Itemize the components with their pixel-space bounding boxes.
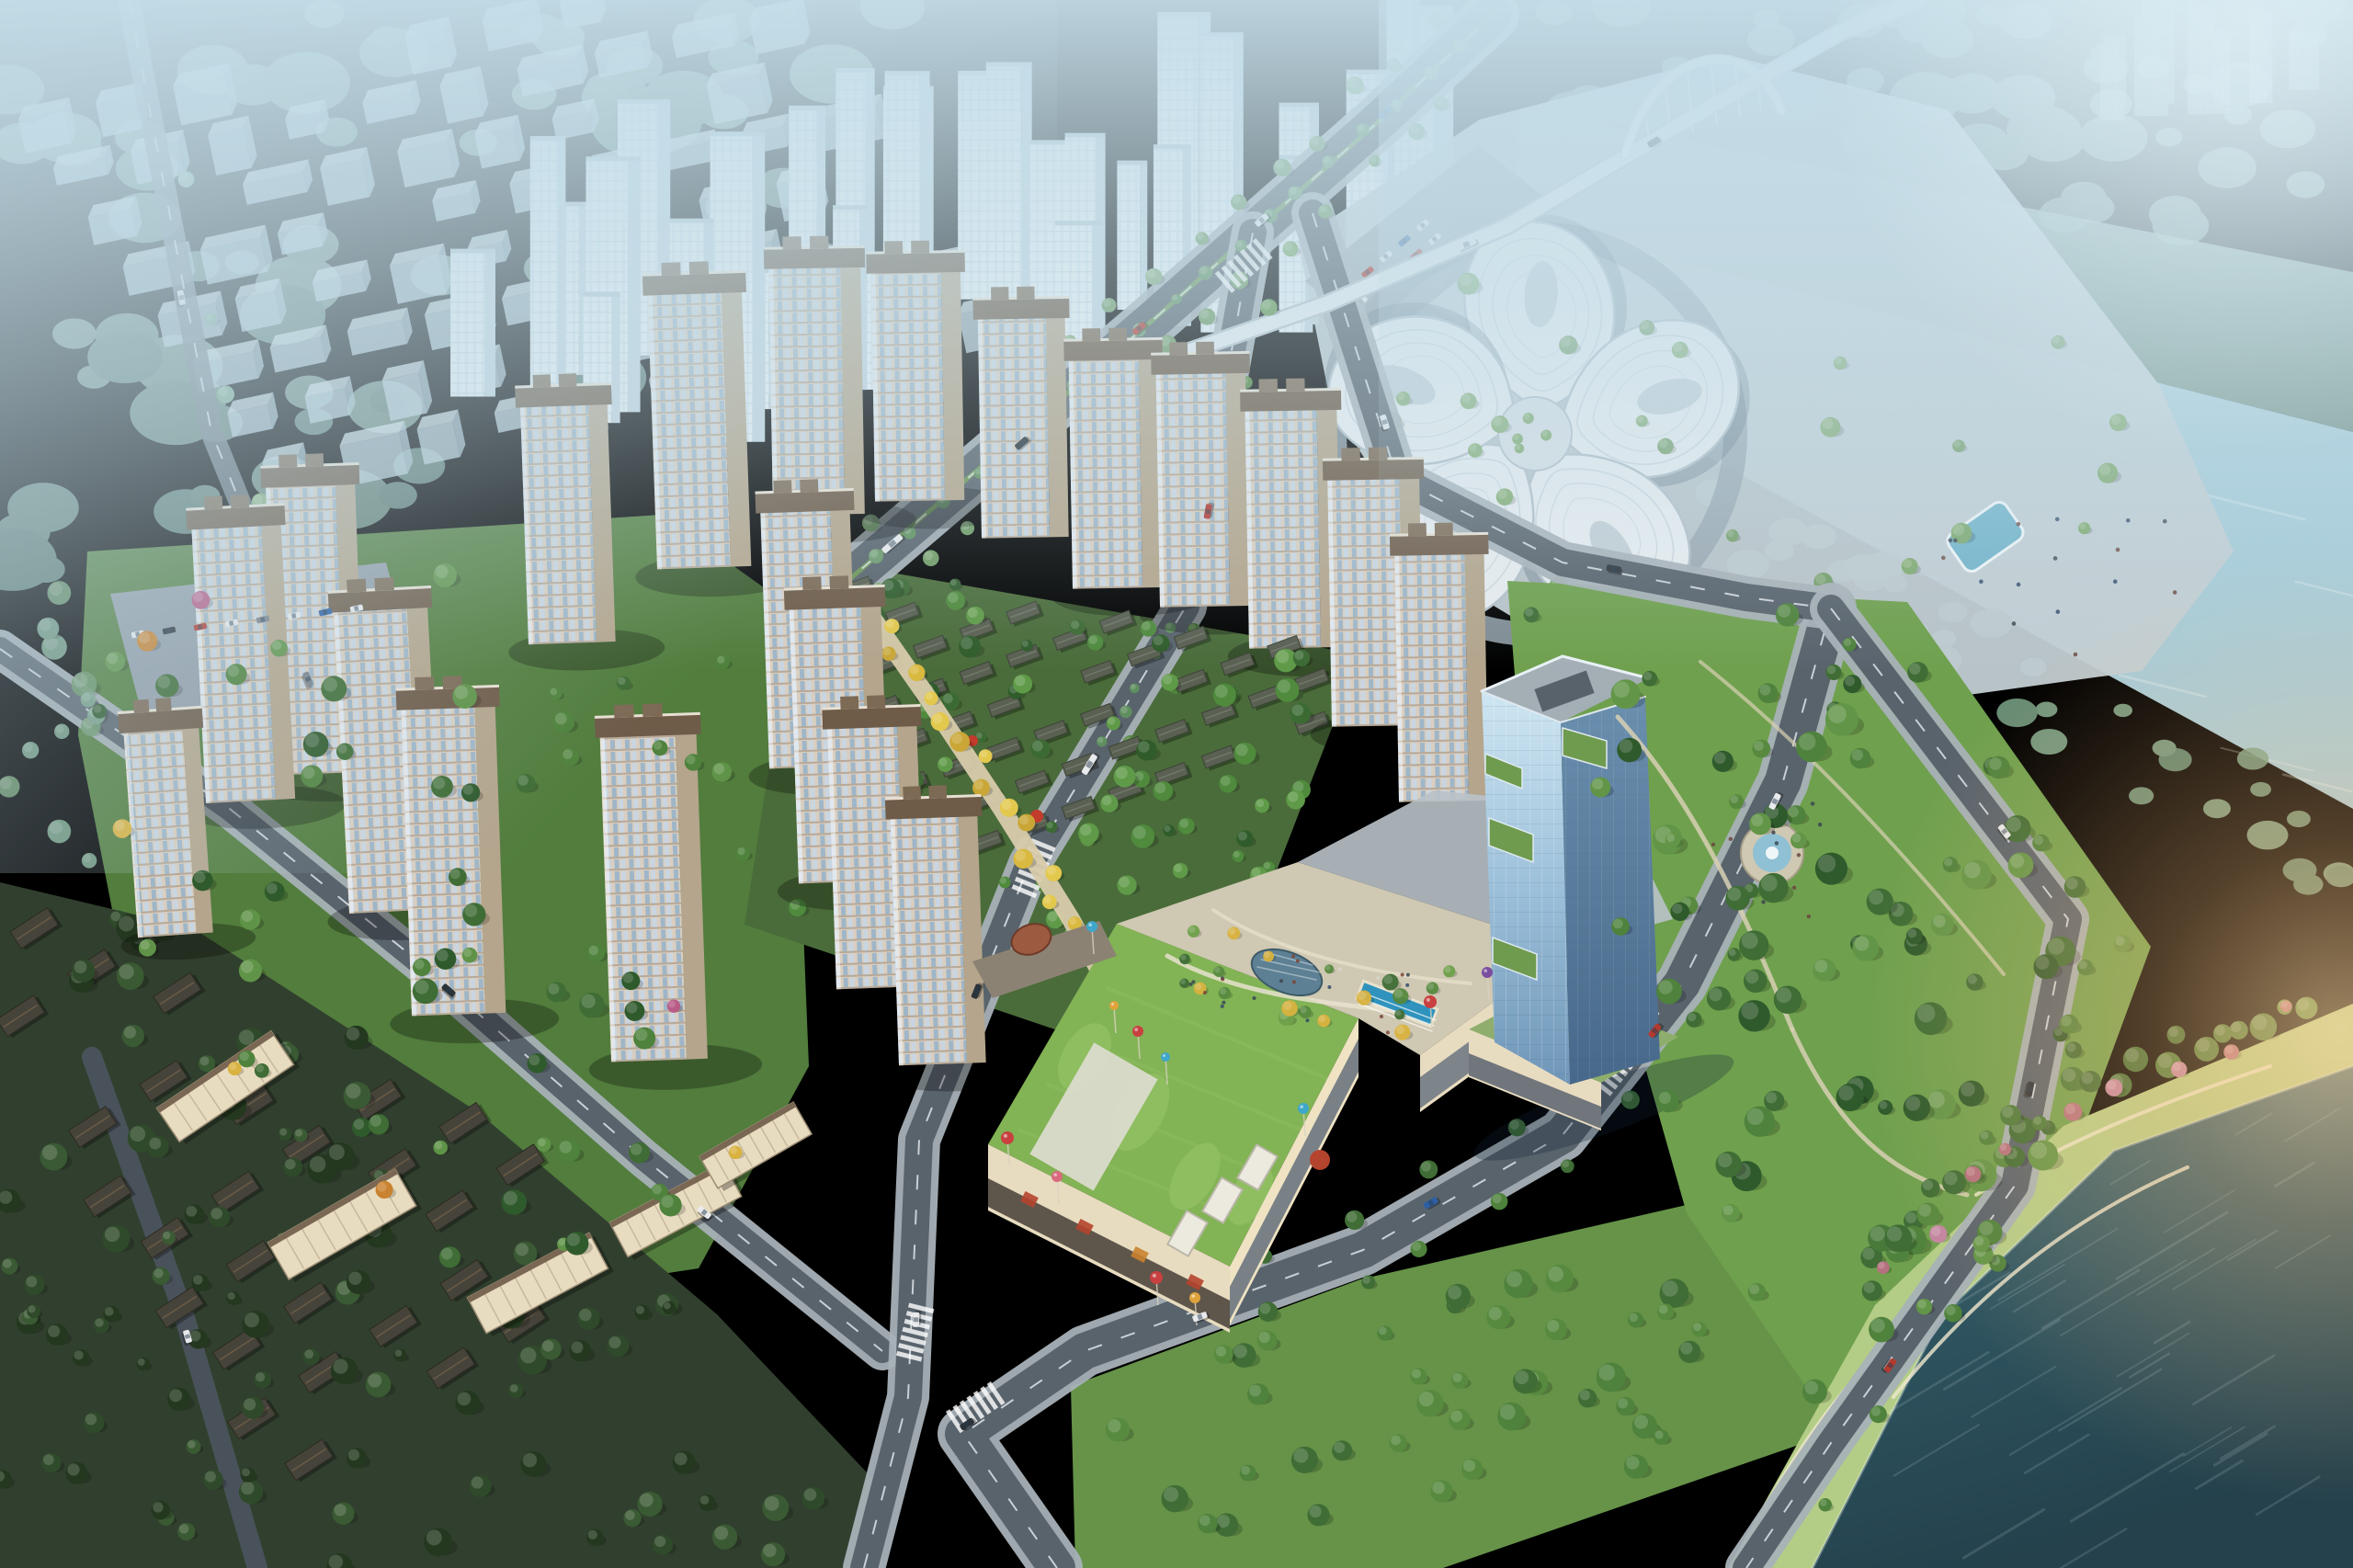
masterplan-aerial-rendering bbox=[0, 0, 2353, 1568]
balloon bbox=[1109, 1001, 1119, 1010]
car bbox=[913, 1311, 922, 1327]
balloon bbox=[1132, 1026, 1143, 1037]
balloon bbox=[1001, 1131, 1014, 1144]
balloon bbox=[1051, 1171, 1063, 1182]
balloon bbox=[1482, 967, 1493, 978]
aerial-rendering-stage bbox=[0, 0, 2353, 1568]
balloon bbox=[1189, 1292, 1200, 1303]
balloon bbox=[1298, 1103, 1309, 1114]
balloon bbox=[1161, 1052, 1170, 1062]
balloon bbox=[1086, 921, 1097, 932]
balloon bbox=[1150, 1271, 1163, 1284]
balloon bbox=[1424, 995, 1437, 1008]
